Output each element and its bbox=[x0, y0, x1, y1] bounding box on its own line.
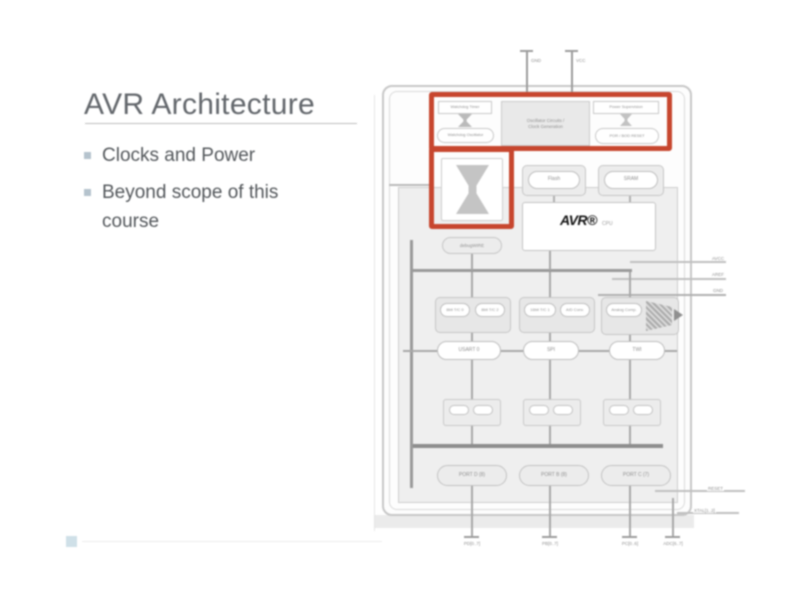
pin-terminal bbox=[622, 536, 637, 538]
gnd-pin-line bbox=[526, 52, 528, 94]
wire bbox=[549, 426, 551, 445]
left-data-bus bbox=[410, 240, 413, 488]
driver-cell bbox=[609, 405, 629, 415]
tc0-block: 8bit T/C 0 bbox=[440, 303, 470, 317]
crystal-feed-wire bbox=[389, 184, 429, 186]
debugwire-block: debugWIRE bbox=[442, 237, 502, 254]
io-bus bbox=[413, 444, 663, 448]
twi-block: TWI bbox=[609, 341, 665, 360]
port-d-block: PORT D (8) bbox=[437, 465, 507, 486]
cpu-label: CPU bbox=[602, 221, 613, 227]
flash-label: Flash bbox=[528, 171, 580, 189]
reset-pin-label: RESET bbox=[707, 486, 724, 491]
xtal-pin-label: XTAL[1..2] bbox=[693, 508, 716, 513]
bullet-text: Clocks and Power bbox=[102, 141, 255, 170]
port-c-block: PORT C (7) bbox=[601, 465, 671, 486]
gnd-right-pin-label: GND bbox=[712, 288, 724, 293]
aref-pin-label: AREF bbox=[711, 272, 725, 277]
bullet-text: Beyond scope of this course bbox=[102, 178, 332, 236]
port-b-block: PORT B (8) bbox=[519, 465, 589, 486]
tc2-block: 8bit T/C 2 bbox=[475, 303, 505, 317]
reset-wire bbox=[655, 490, 745, 492]
wire bbox=[629, 486, 631, 538]
wire bbox=[471, 486, 473, 538]
footer-accent-square bbox=[66, 536, 77, 547]
avcc-pin-label: AVCC bbox=[711, 256, 725, 261]
adc-block: A/D Conv. bbox=[560, 303, 590, 317]
driver-cell bbox=[553, 405, 573, 415]
driver-cell bbox=[473, 405, 493, 415]
wire bbox=[549, 486, 551, 538]
wire bbox=[629, 360, 631, 400]
wire bbox=[471, 426, 473, 445]
gnd-right-wire bbox=[598, 294, 726, 296]
page-title: AVR Architecture bbox=[84, 88, 315, 122]
pb-pins-label: PB[0..7] bbox=[533, 541, 567, 546]
wire bbox=[471, 254, 473, 270]
analog-comparator-block: Analog Comp. bbox=[606, 303, 642, 317]
bullet-marker-icon bbox=[84, 152, 91, 159]
presentation-slide: AVR Architecture Clocks and Power Beyond… bbox=[0, 0, 792, 612]
main-data-bus bbox=[412, 269, 632, 272]
avcc-wire bbox=[630, 261, 726, 263]
bullet-item: Clocks and Power bbox=[84, 141, 332, 170]
pin-terminal bbox=[665, 536, 680, 538]
driver-cell bbox=[633, 405, 653, 415]
sram-label: SRAM bbox=[604, 171, 658, 189]
highlight-power-box bbox=[429, 147, 514, 229]
wire bbox=[549, 360, 551, 400]
spi-block: SPI bbox=[523, 341, 579, 360]
title-underline bbox=[85, 123, 357, 124]
bullet-marker-icon bbox=[84, 189, 91, 196]
pin-terminal bbox=[464, 536, 479, 538]
driver-cell bbox=[529, 405, 549, 415]
wire bbox=[672, 498, 674, 538]
bullet-list: Clocks and Power Beyond scope of this co… bbox=[84, 141, 332, 244]
mux-arrow-icon bbox=[674, 309, 683, 321]
pd-pins-label: PD[0..7] bbox=[455, 541, 489, 546]
bullet-item: Beyond scope of this course bbox=[84, 178, 332, 236]
wire bbox=[549, 272, 551, 299]
footer-rule bbox=[82, 541, 382, 542]
vcc-pin-line bbox=[571, 52, 573, 94]
wire bbox=[549, 251, 551, 270]
pc-pins-label: PC[0..6] bbox=[613, 541, 647, 546]
highlight-clocks-box bbox=[429, 92, 672, 151]
driver-cell bbox=[449, 405, 469, 415]
wire bbox=[629, 426, 631, 445]
tc1-block: 16bit T/C 1 bbox=[524, 303, 556, 317]
wire bbox=[471, 360, 473, 400]
avr-logo: AVR® bbox=[560, 212, 597, 228]
vcc-pin-label: VCC bbox=[576, 58, 586, 63]
slide-content: AVR Architecture Clocks and Power Beyond… bbox=[0, 0, 792, 612]
chip-shadow bbox=[374, 515, 694, 528]
adc-pins-label: ADC[6..7] bbox=[654, 541, 692, 546]
figure-edge bbox=[374, 95, 375, 531]
wire bbox=[471, 272, 473, 299]
usart-block: USART 0 bbox=[437, 341, 501, 360]
wire bbox=[629, 272, 631, 299]
gnd-pin-label: GND bbox=[531, 58, 541, 63]
pin-terminal bbox=[542, 536, 557, 538]
